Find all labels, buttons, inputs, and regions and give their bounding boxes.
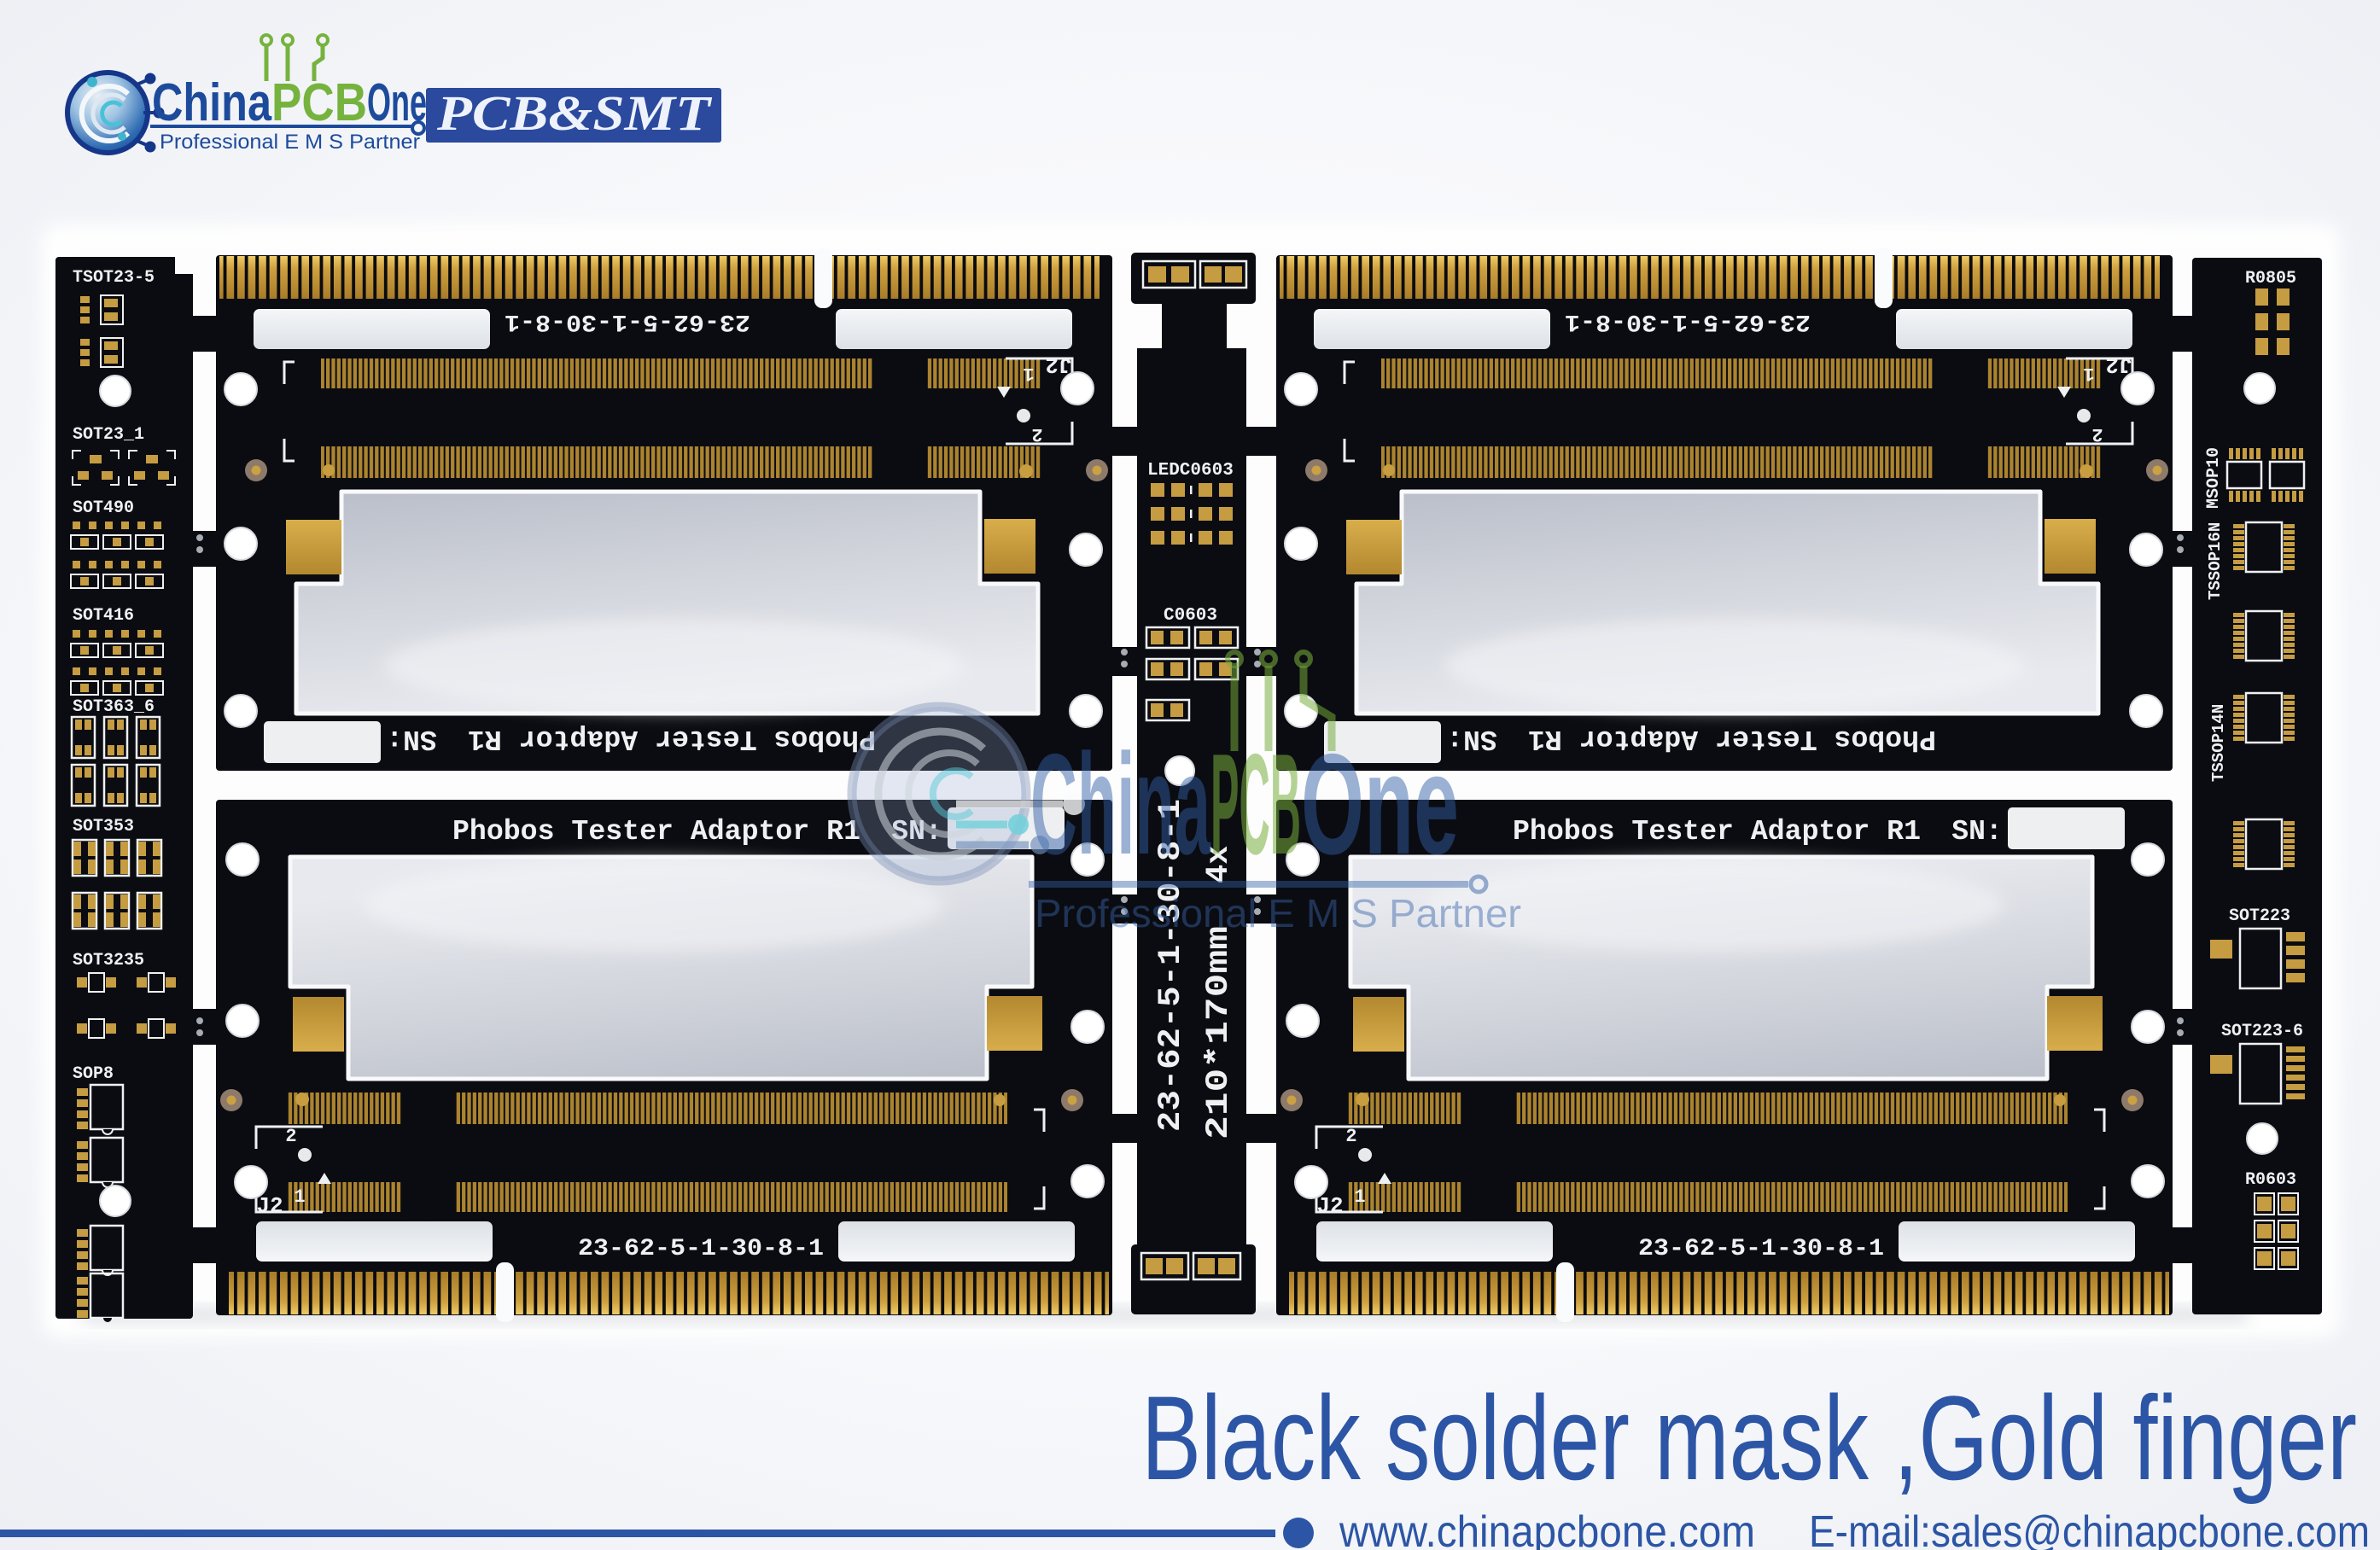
svg-text:SOT490: SOT490 (73, 498, 134, 518)
svg-text:E-mail:sales@chinapcbone.com: E-mail:sales@chinapcbone.com (1809, 1507, 2370, 1550)
svg-text:C0603: C0603 (1164, 606, 1217, 626)
svg-text:TSOT23-5: TSOT23-5 (73, 268, 155, 288)
svg-text:210*170mm: 210*170mm (1201, 926, 1237, 1139)
svg-text:Professional E M S Partner: Professional E M S Partner (160, 131, 420, 154)
svg-text:SOT23_1: SOT23_1 (73, 425, 144, 445)
svg-text:Professional E M S Partner: Professional E M S Partner (1035, 891, 1521, 935)
svg-text:SOT223: SOT223 (2229, 906, 2290, 926)
svg-text:LEDC0603: LEDC0603 (1147, 461, 1234, 481)
svg-text:R0805: R0805 (2245, 269, 2296, 288)
svg-text:R0603: R0603 (2245, 1170, 2296, 1190)
svg-text:PCB: PCB (271, 73, 367, 132)
svg-text:SOT416: SOT416 (73, 606, 134, 626)
svg-text:MSOP10: MSOP10 (2204, 447, 2224, 509)
svg-text:SOT3235: SOT3235 (73, 951, 144, 970)
svg-text:SOT353: SOT353 (73, 817, 134, 836)
svg-text:Black solder mask ,Gold finger: Black solder mask ,Gold finger (1141, 1371, 2357, 1505)
svg-text:SOT363_6: SOT363_6 (73, 697, 155, 717)
svg-text:TSSOP16N: TSSOP16N (2206, 522, 2225, 600)
svg-text:PCB&SMT: PCB&SMT (436, 85, 713, 141)
svg-text:China: China (152, 73, 271, 132)
svg-text:PCB: PCB (1210, 724, 1301, 884)
svg-text:SOP8: SOP8 (73, 1064, 114, 1084)
svg-text:One: One (1301, 724, 1459, 884)
svg-text:www.chinapcbone.com: www.chinapcbone.com (1339, 1507, 1755, 1550)
svg-text:SOT223-6: SOT223-6 (2221, 1022, 2303, 1041)
svg-text:TSSOP14N: TSSOP14N (2209, 704, 2228, 782)
svg-text:China: China (1030, 724, 1211, 884)
